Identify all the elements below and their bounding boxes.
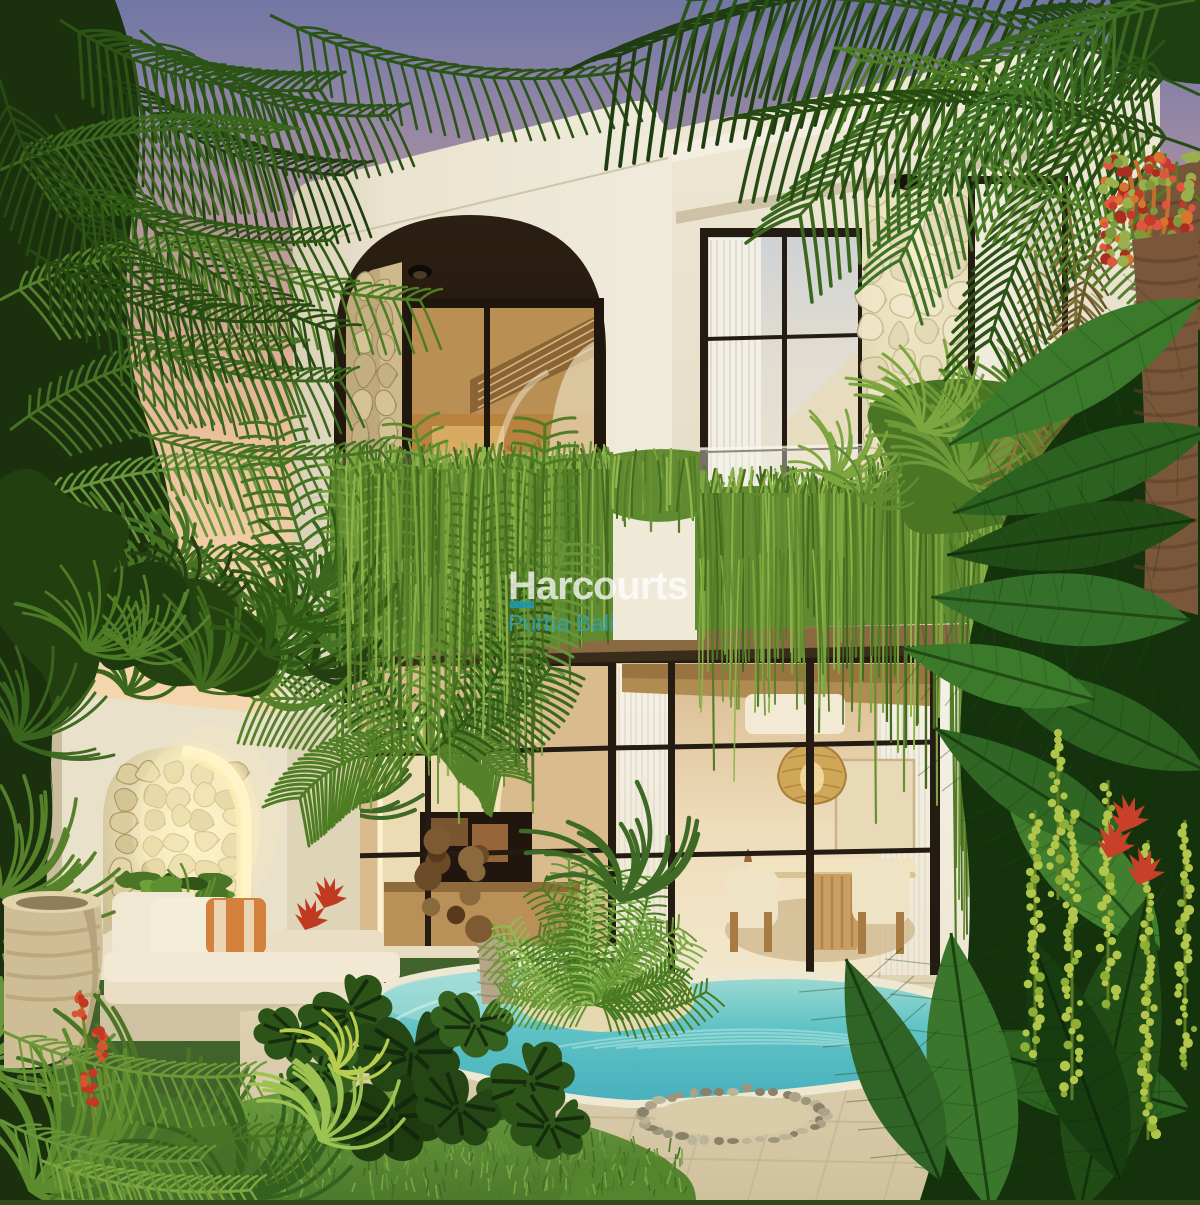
svg-text:Purba Bali: Purba Bali	[508, 610, 614, 636]
svg-text:Harcourts: Harcourts	[508, 564, 688, 608]
